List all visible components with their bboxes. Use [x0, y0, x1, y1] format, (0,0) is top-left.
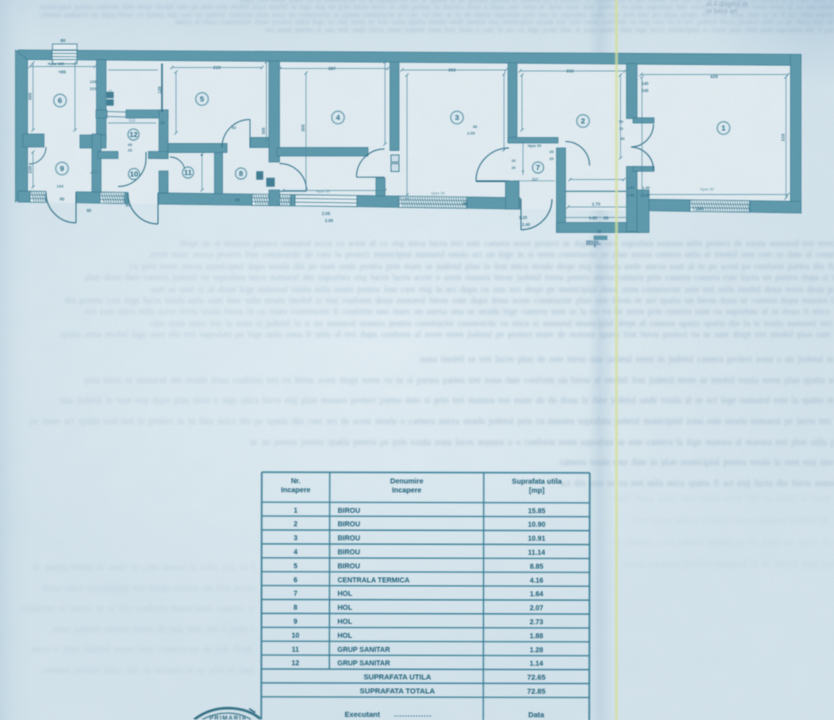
svg-text:50: 50: [619, 119, 623, 124]
svg-text:240: 240: [642, 88, 650, 93]
svg-text:1.88: 1.88: [530, 633, 544, 640]
svg-text:6: 6: [58, 96, 62, 105]
svg-text:11.14: 11.14: [528, 550, 545, 557]
svg-text:1.40: 1.40: [642, 185, 650, 190]
svg-text:1: 1: [721, 123, 725, 132]
svg-text:140: 140: [642, 81, 650, 86]
svg-text:10.90: 10.90: [528, 522, 546, 529]
svg-text:90: 90: [405, 196, 410, 201]
svg-text:11: 11: [292, 647, 300, 654]
svg-text:310: 310: [781, 133, 786, 141]
svg-text:15.85: 15.85: [528, 508, 546, 515]
svg-text:Hpar 90: Hpar 90: [316, 189, 331, 194]
svg-text:1: 1: [294, 508, 298, 515]
svg-text:4: 4: [294, 549, 298, 556]
svg-text:10: 10: [130, 169, 138, 178]
svg-text:1.70: 1.70: [592, 202, 601, 207]
svg-text:128: 128: [90, 79, 97, 84]
svg-text:Data: Data: [528, 710, 545, 719]
svg-text:1.20: 1.20: [519, 215, 528, 220]
svg-text:429: 429: [710, 74, 718, 79]
svg-text:26: 26: [511, 159, 515, 163]
svg-text:2: 2: [294, 521, 298, 528]
svg-text:12: 12: [291, 660, 299, 667]
svg-text:46: 46: [473, 124, 478, 129]
svg-text:+: +: [201, 153, 204, 158]
svg-text:387: 387: [328, 66, 336, 71]
svg-text:2.40: 2.40: [642, 193, 650, 198]
svg-text:85: 85: [235, 198, 240, 203]
svg-text:26: 26: [160, 120, 165, 125]
svg-text:2.06: 2.06: [325, 218, 334, 223]
svg-text:Hper 90: Hper 90: [431, 191, 446, 196]
svg-text:6: 6: [294, 577, 298, 584]
svg-text:80: 80: [126, 203, 131, 208]
svg-text:BIROU: BIROU: [338, 549, 361, 556]
svg-text:HOL: HOL: [337, 633, 353, 640]
svg-text:+85: +85: [58, 70, 66, 75]
svg-text:GRUP SANITAR: GRUP SANITAR: [337, 647, 390, 654]
svg-text:72.85: 72.85: [527, 687, 546, 696]
svg-text:85: 85: [604, 216, 609, 221]
svg-text:2.40: 2.40: [627, 193, 635, 198]
svg-text:SUPRAFATA TOTALA: SUPRAFATA TOTALA: [360, 686, 436, 695]
svg-text:2.73: 2.73: [530, 619, 544, 626]
svg-text:2.40: 2.40: [522, 222, 531, 227]
svg-text:46: 46: [128, 142, 133, 147]
svg-text:9: 9: [293, 619, 297, 626]
svg-text:80: 80: [60, 38, 66, 43]
svg-text:8: 8: [239, 169, 243, 178]
svg-text:HOL: HOL: [338, 591, 354, 598]
svg-text:BIROU: BIROU: [338, 563, 361, 570]
svg-text:1.64: 1.64: [530, 591, 544, 598]
svg-text:10: 10: [292, 633, 300, 640]
svg-text:72.65: 72.65: [527, 673, 546, 682]
svg-text:4: 4: [336, 113, 341, 122]
svg-text:117: 117: [532, 177, 539, 182]
svg-text:2.05: 2.05: [467, 131, 476, 136]
svg-text:GRUP SANITAR: GRUP SANITAR: [337, 661, 390, 668]
svg-text:26: 26: [128, 148, 133, 153]
svg-text:BIROU: BIROU: [338, 508, 361, 515]
svg-text:BIROU: BIROU: [338, 535, 361, 542]
svg-text:5: 5: [200, 94, 204, 103]
svg-text:HOL: HOL: [337, 605, 353, 612]
svg-text:240: 240: [696, 206, 704, 211]
svg-text:3: 3: [455, 113, 459, 122]
svg-text:4.16: 4.16: [530, 578, 544, 585]
svg-text:BIROU: BIROU: [338, 522, 361, 529]
svg-text:363: 363: [448, 68, 456, 73]
svg-text:7: 7: [536, 163, 540, 172]
svg-text:305: 305: [28, 92, 33, 100]
svg-text:220: 220: [28, 165, 33, 173]
svg-text:PRIMARIA: PRIMARIA: [209, 716, 247, 720]
svg-text:8: 8: [294, 605, 298, 612]
svg-text:Hpar 90: Hpar 90: [528, 144, 542, 148]
svg-text:1.28: 1.28: [530, 647, 544, 654]
svg-text:80: 80: [87, 208, 92, 213]
svg-text:SUPRAFATA UTILA: SUPRAFATA UTILA: [364, 672, 432, 681]
svg-text:12: 12: [129, 130, 137, 139]
svg-text:134: 134: [57, 184, 64, 189]
svg-text:52: 52: [232, 125, 237, 130]
svg-text:3: 3: [294, 535, 298, 542]
svg-text:10.91: 10.91: [528, 536, 546, 543]
svg-text:220: 220: [90, 86, 97, 91]
svg-text:0.85: 0.85: [589, 216, 598, 221]
svg-text:20: 20: [549, 156, 553, 161]
svg-text:2.07: 2.07: [530, 605, 544, 612]
svg-text:Hpar 150: Hpar 150: [48, 61, 64, 66]
svg-text:5: 5: [294, 563, 298, 570]
svg-text:90: 90: [60, 197, 65, 202]
svg-text:HOL: HOL: [337, 619, 353, 626]
svg-text:9: 9: [60, 164, 64, 173]
svg-text:+: +: [522, 169, 525, 174]
svg-text:2: 2: [581, 116, 585, 125]
svg-text:70: 70: [619, 126, 623, 131]
svg-text:305: 305: [301, 124, 306, 132]
svg-text:Hpar 90: Hpar 90: [700, 187, 715, 192]
svg-text:35: 35: [597, 229, 602, 234]
svg-text:112: 112: [129, 117, 137, 122]
svg-text:CENTRALA TERMICA: CENTRALA TERMICA: [338, 577, 410, 584]
svg-text:20: 20: [511, 166, 515, 170]
svg-text:2.05: 2.05: [322, 211, 331, 216]
svg-text:305: 305: [261, 127, 266, 135]
svg-text:Executant: Executant: [345, 710, 381, 719]
svg-text:333: 333: [566, 69, 574, 74]
svg-text:1.47: 1.47: [627, 185, 635, 190]
svg-text:90: 90: [620, 136, 624, 141]
svg-text:8.85: 8.85: [530, 564, 544, 571]
svg-text:7: 7: [294, 591, 298, 598]
svg-text:220: 220: [108, 89, 113, 96]
svg-text:128: 128: [157, 86, 162, 94]
svg-text:26: 26: [549, 149, 554, 154]
svg-text:215: 215: [213, 65, 221, 70]
svg-text:90: 90: [463, 201, 468, 206]
svg-text:1.14: 1.14: [530, 661, 544, 668]
svg-text:11: 11: [184, 168, 192, 177]
